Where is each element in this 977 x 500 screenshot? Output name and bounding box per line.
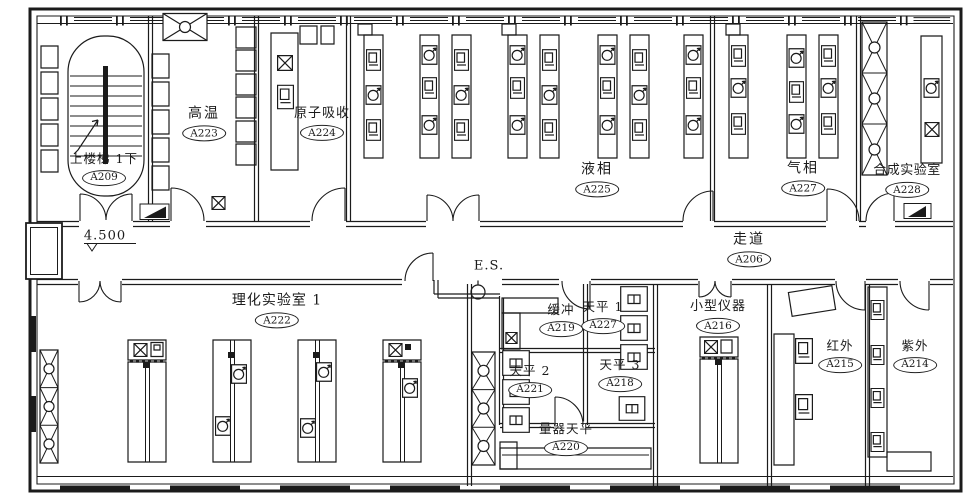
instrument-box-icon xyxy=(871,300,884,319)
balance-table-icon xyxy=(503,351,530,376)
instrument-dial-icon xyxy=(317,363,332,381)
instrument-box-icon xyxy=(543,120,557,141)
door-arc xyxy=(427,195,479,221)
fume-hood-hatch-icon xyxy=(862,22,887,175)
instrument-box-icon xyxy=(732,46,746,67)
instrument-box-icon xyxy=(455,50,469,71)
door-arc xyxy=(683,191,713,221)
instrument-dial-icon xyxy=(366,86,381,104)
stairwell xyxy=(41,36,169,196)
instrument-box-icon xyxy=(601,78,615,99)
sink-xbox-icon xyxy=(705,341,718,354)
floor-drain-icon xyxy=(278,56,293,71)
room-a225-benches xyxy=(364,35,703,158)
lab-bench xyxy=(213,340,251,462)
instrument-box-icon xyxy=(871,432,884,451)
instrument-dial-icon xyxy=(510,116,525,134)
instrument-box-icon xyxy=(455,120,469,141)
door-arc xyxy=(555,397,583,425)
lab-bench xyxy=(383,340,421,462)
instrument-dial-icon xyxy=(510,46,525,64)
instrument-box-icon xyxy=(687,78,701,99)
instrument-dial-icon xyxy=(686,46,701,64)
lab-bench xyxy=(128,340,166,462)
instrument-dial-icon xyxy=(422,46,437,64)
instrument-box-icon xyxy=(423,78,437,99)
instrument-dial-icon xyxy=(600,116,615,134)
instrument-box-icon xyxy=(822,114,836,135)
instrument-dial-icon xyxy=(422,116,437,134)
instrument-dial-icon xyxy=(789,115,804,133)
fume-hood-hatch-icon xyxy=(40,350,58,463)
instrument-box-icon xyxy=(871,345,884,364)
elevation-marker-icon xyxy=(84,244,136,252)
room-a214-fixtures xyxy=(868,287,931,471)
air-handler-icon xyxy=(163,14,207,41)
room-a215-fixtures xyxy=(774,286,836,465)
buffer-counter xyxy=(502,298,558,349)
instrument-dial-icon xyxy=(821,79,836,97)
floor-plan-drawing xyxy=(0,0,977,500)
balance-table-icon xyxy=(619,397,645,421)
stair-up-arrow-icon xyxy=(74,120,98,154)
door-arc xyxy=(80,194,132,221)
measuring-bench xyxy=(500,442,651,469)
instrument-dial-icon xyxy=(403,379,418,397)
instrument-box-icon xyxy=(732,114,746,135)
instrument-box-icon xyxy=(822,46,836,67)
instrument-dial-icon xyxy=(454,86,469,104)
instrument-box-icon xyxy=(278,85,294,108)
instrument-dial-icon xyxy=(600,46,615,64)
instrument-dial-icon xyxy=(924,79,939,97)
room-a223-fixtures xyxy=(212,27,256,209)
instrument-dial-icon xyxy=(216,417,231,435)
instrument-dial-icon xyxy=(542,86,557,104)
window-band-bottom xyxy=(31,316,954,491)
balance-table-icon xyxy=(621,287,648,312)
balance-table-icon xyxy=(621,345,648,370)
instrument-dial-icon xyxy=(789,49,804,67)
corridor-walls xyxy=(37,218,953,298)
room-a216-fixtures xyxy=(700,337,738,463)
instrument-box-icon xyxy=(633,50,647,71)
floor-drain-icon xyxy=(506,332,517,343)
instrument-dial-icon xyxy=(686,116,701,134)
instrument-dial-icon xyxy=(232,365,247,383)
floor-drain-icon xyxy=(925,123,939,137)
room-a222-fixtures xyxy=(40,340,421,463)
door-arc xyxy=(827,189,859,221)
instrument-box-icon xyxy=(511,78,525,99)
sink-xbox-icon xyxy=(134,344,147,357)
room-a228-fixtures xyxy=(862,22,942,175)
sink-xbox-icon xyxy=(389,344,402,357)
instrument-box-icon xyxy=(871,388,884,407)
instrument-box-icon xyxy=(796,339,813,364)
balance-table-icon xyxy=(621,316,648,341)
instrument-dial-icon xyxy=(731,79,746,97)
instrument-box-icon xyxy=(367,50,381,71)
instrument-box-icon xyxy=(543,50,557,71)
instrument-box-icon xyxy=(633,120,647,141)
instrument-box-icon xyxy=(367,120,381,141)
door-arc xyxy=(405,253,433,281)
instrument-box-icon xyxy=(790,82,804,103)
elevator-shaft xyxy=(26,223,62,279)
room-a224-fixtures xyxy=(271,26,334,170)
door-arc xyxy=(312,188,345,221)
floor-drain-icon xyxy=(212,197,225,210)
fume-hood-hatch-icon xyxy=(472,352,495,465)
instrument-box-icon xyxy=(796,395,813,420)
balance-table-icon xyxy=(503,408,530,433)
instrument-dial-icon xyxy=(632,86,647,104)
lab-bench xyxy=(298,340,336,462)
instrument-dial-icon xyxy=(301,419,316,437)
door-arc xyxy=(866,193,894,221)
balance-table-icon xyxy=(503,380,530,405)
floor-plan: 上楼梯 1下 A209 高温 A223 原子吸收 A224 液相 A225 气相… xyxy=(0,0,977,500)
door-arc xyxy=(171,188,204,221)
room-a227-benches xyxy=(729,35,838,158)
balance-rooms-fixtures xyxy=(472,287,651,469)
